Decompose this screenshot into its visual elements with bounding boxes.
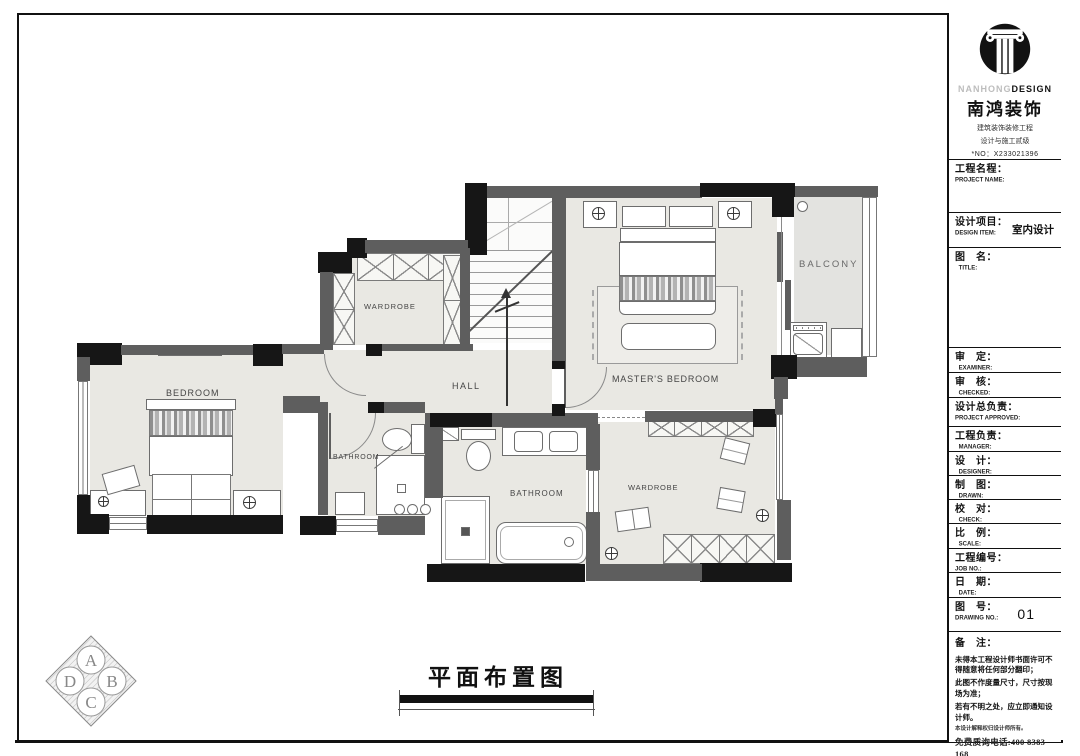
- bathtub-drain: [564, 537, 574, 547]
- toilet-tank-small: [411, 424, 425, 454]
- door-leaf-bathroom-small: [329, 413, 331, 459]
- washing-machine-panel: [793, 325, 823, 331]
- ceiling-light-icon: [243, 496, 256, 509]
- toilet-tank-large: [461, 429, 496, 440]
- drawing-title: 平面布置图: [428, 658, 568, 692]
- drawing-no-value: 01: [1017, 606, 1035, 622]
- shower-small-drain: [397, 484, 406, 493]
- design-item-value: 室内设计: [1012, 222, 1054, 237]
- field-scale: 比 例：SCALE:: [949, 524, 1061, 549]
- toilet-bowl-small: [382, 428, 412, 451]
- remark-line: 若有不明之处，应立即通知设计师。: [955, 702, 1055, 724]
- remark-line: 此图不作度量尺寸，尺寸按现场为准；: [955, 678, 1055, 700]
- room-label-wardrobe-walkin: WARDROBE: [628, 483, 678, 492]
- master-bed-headrest: [620, 228, 716, 242]
- washing-machine-drum: [793, 333, 823, 355]
- compass-logo: A B C D: [44, 634, 138, 728]
- sink-knob-1: [394, 504, 405, 515]
- remarks-section: 备 注： 未得本工程设计师书面许可不得随意将任何部分翻印； 此图不作度量尺寸，尺…: [949, 632, 1061, 756]
- field-project-approved: 设计总负责：PROJECT APPROVED:: [949, 398, 1061, 427]
- svg-text:B: B: [106, 672, 117, 691]
- field-designer: 设 计：DESIGNER:: [949, 452, 1061, 476]
- balcony-slider-track: [781, 200, 782, 356]
- stairs-up-arrow-shaft: [506, 298, 508, 406]
- room-label-bathroom-small: BATHROOM: [333, 454, 379, 461]
- master-bed-foot: [619, 301, 716, 315]
- drawing-sheet: BEDROOM WARDROBE HALL MASTER'S BEDROOM B…: [0, 0, 1080, 756]
- sink-right: [549, 431, 578, 452]
- stairs-up-arrow-head: [501, 288, 511, 298]
- toilet-bowl-large: [466, 441, 491, 471]
- room-label-wardrobe-top: WARDROBE: [364, 302, 416, 311]
- master-bed-pillow-left: [622, 206, 666, 227]
- room-label-balcony: BALCONY: [799, 259, 858, 270]
- brand-subtitle-1: 建筑装饰装修工程: [949, 123, 1061, 133]
- sink-left: [514, 431, 543, 452]
- svg-text:A: A: [85, 651, 98, 670]
- field-date: 日 期：DATE:: [949, 573, 1061, 598]
- bedroom-bed-bench: [152, 474, 231, 516]
- company-logo-block: NANHONGDESIGN 南鸿装饰 建筑装饰装修工程 设计与施工贰级 *NO：…: [949, 13, 1061, 160]
- bedroom-bed-body: [149, 436, 233, 476]
- title-block: NANHONGDESIGN 南鸿装饰 建筑装饰装修工程 设计与施工贰级 *NO：…: [947, 13, 1061, 742]
- master-bed-body: [619, 242, 716, 276]
- bedroom-bed-pillows: [149, 410, 233, 436]
- brand-subtitle-2: 设计与施工贰级: [949, 136, 1061, 146]
- ceiling-light-icon: [756, 509, 769, 522]
- bedroom-nightstand-right: [233, 490, 281, 516]
- brand-english: NANHONGDESIGN: [949, 84, 1061, 94]
- field-check: 校 对：CHECK:: [949, 500, 1061, 524]
- master-bench: [621, 323, 716, 350]
- stairs-steps: [470, 250, 552, 344]
- master-rug-fringe-left: [592, 290, 595, 360]
- vanity-small: [335, 492, 365, 515]
- sink-knob-2: [407, 504, 418, 515]
- walkin-closet-bottom: [663, 534, 775, 564]
- master-bed-runner: [619, 276, 716, 301]
- bedroom-bed-headboard: [146, 399, 236, 410]
- field-drawn: 制 图：DRAWN:: [949, 476, 1061, 500]
- brand-license-no: *NO：X233021396: [949, 149, 1061, 159]
- sheet-border-left: [17, 13, 19, 742]
- room-label-master-bedroom: MASTER'S BEDROOM: [612, 374, 719, 384]
- room-label-bathroom-large: BATHROOM: [510, 489, 564, 498]
- room-label-hall: HALL: [452, 381, 481, 391]
- shower-drain: [461, 527, 470, 536]
- wardrobe-closet-left: [333, 273, 355, 345]
- remark-line: 未得本工程设计师书面许可不得随意将任何部分翻印；: [955, 655, 1055, 677]
- field-checked: 审 核：CHECKED:: [949, 373, 1061, 398]
- balcony-counter: [831, 328, 862, 358]
- balcony-floor-drain: [797, 201, 808, 212]
- sink-knob-3: [420, 504, 431, 515]
- remarks-fine-print: 本设计解释权归设计师所有。: [955, 726, 1055, 734]
- master-bed-pillow-right: [669, 206, 713, 227]
- clothes-rack-2: [716, 487, 745, 513]
- field-project-name: 工程名程：PROJECT NAME:: [949, 160, 1061, 213]
- sheet-border-bottom: [15, 740, 1063, 743]
- svg-text:D: D: [64, 672, 76, 691]
- svg-text:C: C: [85, 693, 96, 712]
- room-label-bedroom: BEDROOM: [166, 388, 220, 398]
- door-leaf-master: [564, 367, 566, 408]
- field-title: 图 名：TITLE:: [949, 248, 1061, 348]
- cased-opening-wardrobe: [597, 417, 645, 418]
- sheet-border-top: [17, 13, 1061, 15]
- ceiling-light-icon: [727, 207, 740, 220]
- compass-diamond: A B C D: [44, 634, 138, 728]
- ceiling-light-icon: [98, 496, 109, 507]
- balcony-slider-panel1: [777, 232, 783, 282]
- field-drawing-no: 图 号：DRAWING NO.: 01: [949, 598, 1061, 632]
- hotline: 免费质询电话:400 8383 168: [955, 736, 1055, 756]
- ceiling-light-icon: [592, 207, 605, 220]
- field-examiner: 审 定：EXAMINER:: [949, 348, 1061, 373]
- brand-chinese: 南鸿装饰: [949, 95, 1061, 120]
- field-design-item: 设计项目：DESIGN ITEM: 室内设计: [949, 213, 1061, 248]
- field-job-no: 工程编号：JOB NO.:: [949, 549, 1061, 573]
- roman-column-icon: [977, 21, 1033, 77]
- stairs-landing-line: [508, 197, 509, 250]
- field-manager: 工程负责：MANAGER:: [949, 427, 1061, 452]
- ceiling-light-icon: [605, 547, 618, 560]
- master-rug-fringe-right: [741, 290, 744, 360]
- remarks-label: 备 注：: [955, 637, 1055, 652]
